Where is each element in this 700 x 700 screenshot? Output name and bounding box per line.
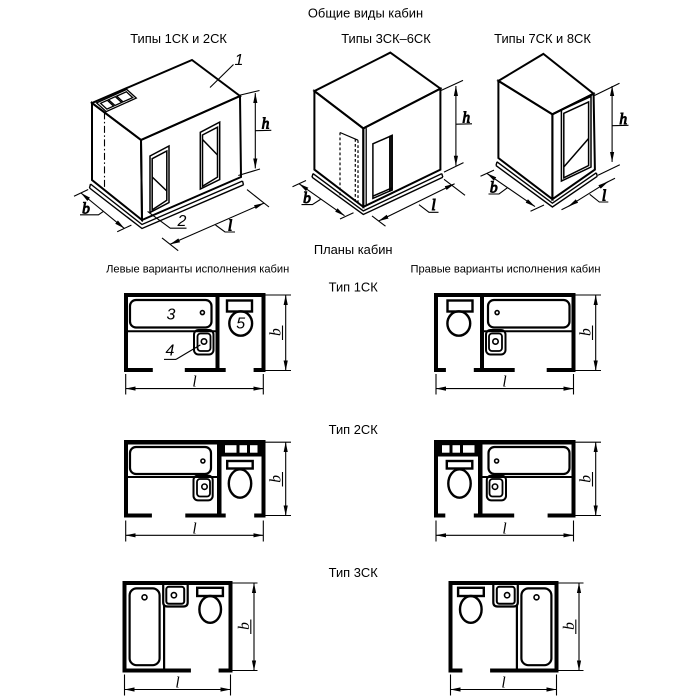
svg-text:Типы 3СК–6СК: Типы 3СК–6СК <box>341 31 431 46</box>
svg-text:h: h <box>619 111 627 128</box>
svg-text:h: h <box>462 109 470 126</box>
svg-text:Тип 2СК: Тип 2СК <box>329 422 379 437</box>
svg-text:Тип 1СК: Тип 1СК <box>329 280 379 295</box>
svg-text:l: l <box>175 675 179 692</box>
svg-text:l: l <box>602 188 606 205</box>
svg-text:Типы 1СК и 2СК: Типы 1СК и 2СК <box>130 31 227 46</box>
svg-text:b: b <box>578 328 595 336</box>
svg-text:Левые варианты исполнения каби: Левые варианты исполнения кабин <box>106 264 289 276</box>
svg-text:b: b <box>490 180 498 197</box>
svg-text:l: l <box>228 218 232 235</box>
svg-text:Общие виды кабин: Общие виды кабин <box>308 6 423 21</box>
svg-text:1: 1 <box>235 52 244 69</box>
svg-text:b: b <box>268 328 285 336</box>
svg-text:b: b <box>578 475 595 483</box>
svg-text:4: 4 <box>166 342 175 359</box>
svg-text:l: l <box>431 197 435 214</box>
svg-text:2: 2 <box>177 213 187 230</box>
svg-text:b: b <box>303 190 311 207</box>
svg-text:l: l <box>502 374 506 391</box>
svg-text:l: l <box>192 374 196 391</box>
svg-text:Тип 3СК: Тип 3СК <box>329 565 379 580</box>
svg-text:Планы кабин: Планы кабин <box>314 242 393 257</box>
svg-text:l: l <box>192 520 196 537</box>
svg-text:b: b <box>82 201 90 218</box>
svg-text:3: 3 <box>167 307 176 324</box>
svg-text:5: 5 <box>236 316 245 333</box>
svg-text:h: h <box>262 116 270 133</box>
svg-text:Правые варианты исполнения каб: Правые варианты исполнения кабин <box>411 264 601 276</box>
svg-text:b: b <box>236 622 253 630</box>
svg-text:b: b <box>268 475 285 483</box>
svg-text:b: b <box>561 622 578 630</box>
svg-text:l: l <box>501 675 505 692</box>
svg-text:l: l <box>502 520 506 537</box>
svg-text:Типы 7СК и 8СК: Типы 7СК и 8СК <box>494 31 591 46</box>
